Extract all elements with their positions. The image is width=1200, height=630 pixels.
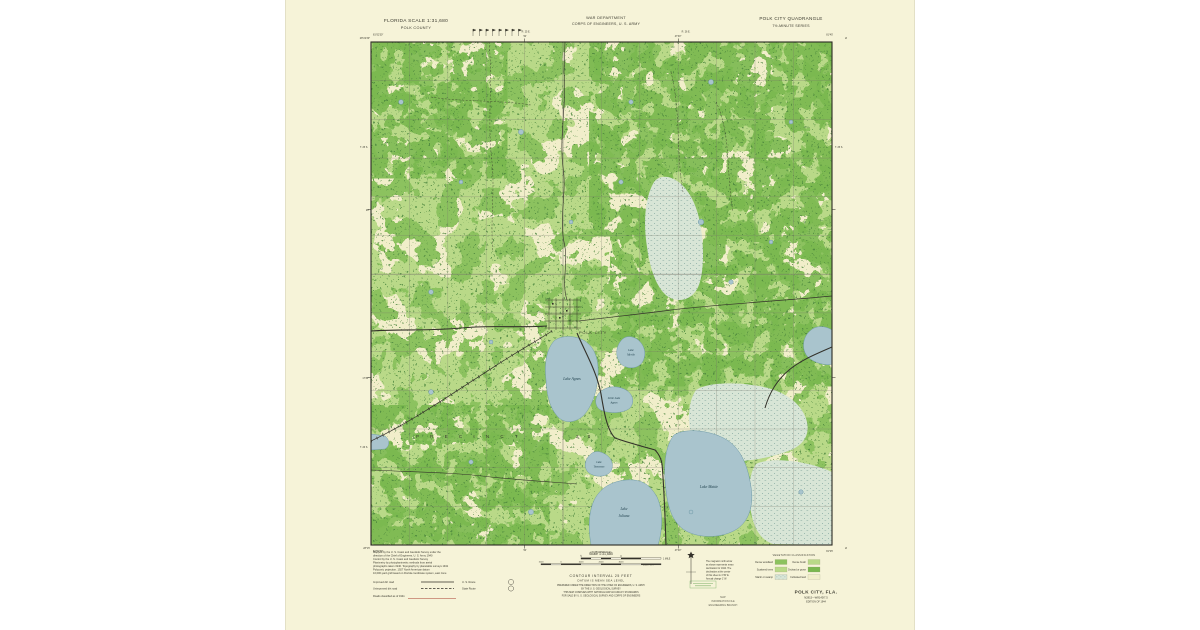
lake-tennessee-label-2: Tennessee bbox=[594, 466, 606, 469]
feet-tick-label: 1000 bbox=[539, 562, 545, 564]
little-lake-agnes-label-1: Little Lake bbox=[607, 396, 621, 400]
archive-stamp: MAP INFORMATION FILE ENGINEERING BRANCH bbox=[690, 581, 738, 607]
legend-label: Dense woodland bbox=[755, 561, 773, 564]
township-label-1: T. 25 S. bbox=[360, 146, 368, 149]
tick-label-top-1: 50′ bbox=[523, 35, 527, 38]
road-classification: Improved dirt road U. S. Route Unimprove… bbox=[373, 579, 514, 598]
miles-tick-label: 1 MILE bbox=[663, 559, 671, 561]
declination-line: of this sheet is 1°30′ E. bbox=[706, 574, 730, 577]
town-label: POLK CITY bbox=[579, 330, 607, 335]
feet-scale-bar: 1000 0 1000 2000 3000 4000 FEET bbox=[539, 562, 661, 567]
us-route-shield bbox=[508, 579, 513, 584]
header-scale-line: FLORIDA SCALE 1:31,680 bbox=[384, 18, 448, 24]
lake-agnes-label: Lake Agnes bbox=[562, 377, 581, 381]
lake-mattie-label: Lake Mattie bbox=[699, 485, 719, 489]
sheet-title: POLK CITY, FLA. bbox=[795, 590, 838, 595]
scale-block: Scale 1:31,680 ½ 0 1 MILE 1000 0 1000 20… bbox=[539, 552, 671, 598]
scale-label: Scale 1:31,680 bbox=[589, 552, 613, 556]
range-label-1: R. 25 E. bbox=[522, 31, 531, 34]
legend-label: Orchard or grove bbox=[788, 569, 807, 572]
declination-line: Annual change 1′ W. bbox=[706, 578, 727, 581]
declination-note: The magnetic north arrow as shown repres… bbox=[706, 560, 734, 581]
lake-myrtle-label-2: Myrtle bbox=[626, 353, 635, 357]
declination-line: declination for 1944. The bbox=[706, 567, 732, 570]
legend-label: Scattered trees bbox=[757, 569, 774, 572]
stamp-line: MAP bbox=[720, 596, 726, 599]
credit-line: Polyconic projection. 1927 North America… bbox=[373, 568, 430, 572]
north-arrow bbox=[686, 552, 696, 585]
miles-tick-label: ½ bbox=[580, 554, 582, 558]
stamp-text: MAP INFORMATION FILE ENGINEERING BRANCH bbox=[709, 596, 738, 607]
legend-label: Cultivated land bbox=[790, 576, 806, 579]
declination-line: The magnetic north arrow bbox=[706, 560, 733, 563]
footer-note-line: BY THE U. S. GEOLOGICAL SURVEY bbox=[581, 588, 621, 591]
corner-label-top-right-lat: 28°22′30″ bbox=[845, 37, 847, 40]
range-label-2: R. 26 E. bbox=[682, 31, 691, 34]
contour-interval-label: CONTOUR INTERVAL 25 FEET bbox=[570, 574, 633, 578]
sheet-edition: EDITION OF 1944 bbox=[806, 601, 826, 604]
credits-block: Mapped by the U. S. Coast and Geodetic S… bbox=[373, 550, 449, 575]
legend-swatch-scattered-trees bbox=[775, 567, 787, 572]
header-right: POLK CITY QUADRANGLE 7½-MINUTE SERIES bbox=[759, 16, 822, 28]
miles-tick-label: 0 bbox=[620, 556, 622, 558]
corner-label-top-left-lat: 28°22′30″ bbox=[360, 37, 370, 40]
credit-line: Control by the U. S. Coast and Geodetic … bbox=[373, 557, 429, 561]
sheet-title-block: POLK CITY, FLA. N2815—W8145/7.5 EDITION … bbox=[795, 590, 838, 604]
road-note: Roads classified as of 1941 bbox=[373, 594, 405, 598]
legend-label: Dense brush bbox=[792, 561, 806, 564]
tick-label-top-2: 47′30″ bbox=[675, 35, 682, 38]
township-label-2: T. 26 S. bbox=[360, 446, 368, 449]
state-route-shield bbox=[508, 586, 513, 591]
township-label-right: T. 25 S. bbox=[835, 146, 843, 149]
og-image-page: FLORIDA SCALE 1:31,680 POLK COUNTY WAR D… bbox=[0, 0, 1200, 630]
declination-line: as shown represents mean bbox=[706, 564, 734, 567]
lake-juliana-label-2: Juliana bbox=[619, 514, 630, 518]
map-sheet: FLORIDA SCALE 1:31,680 POLK COUNTY WAR D… bbox=[285, 0, 915, 630]
declination-line: declination at the center bbox=[706, 571, 731, 574]
footer-note-line: FOR SALE BY U. S. GEOLOGICAL SURVEY AND … bbox=[562, 595, 641, 598]
precinct-number-label: 2 0 bbox=[576, 434, 594, 439]
vegetation-legend: VEGETATION CLASSIFICATION Dense woodland… bbox=[755, 554, 820, 580]
credit-line: Planimetry by photoplanimetric methods f… bbox=[373, 561, 433, 565]
feet-tick-label: 2000 bbox=[599, 562, 605, 564]
legend-swatch-cultivated bbox=[808, 575, 820, 580]
credit-line: 10,000-yard grid based on Florida coordi… bbox=[373, 571, 447, 575]
marsh-southeast bbox=[749, 460, 832, 545]
legend-swatch-orchard bbox=[808, 567, 820, 572]
road-class-label: Unimproved dirt road bbox=[373, 587, 398, 591]
credit-line: photographs taken 1940. Topography by pl… bbox=[373, 564, 449, 568]
lake-myrtle-label-1: Lake bbox=[627, 348, 634, 352]
map-content: POLK CITY P R E C I N C T 2 0 Lake Agnes… bbox=[371, 42, 832, 545]
feet-tick-label: 0 bbox=[560, 562, 562, 564]
footer-note-line: PREPARED UNDER THE DIRECTION OF THE CHIE… bbox=[557, 584, 645, 587]
red-underline bbox=[408, 598, 456, 599]
credit-line: direction of the Chief of Engineers, U. … bbox=[373, 554, 433, 558]
feet-tick-label: 3000 bbox=[619, 562, 625, 564]
header-corps-line: CORPS OF ENGINEERS, U. S. ARMY bbox=[572, 22, 641, 26]
footer-note-line: THIS MAP COMPLIES WITH NATIONAL MAP ACCU… bbox=[563, 591, 639, 594]
lake-tennessee-label-1: Lake bbox=[595, 461, 602, 464]
legend-label: Marsh or swamp bbox=[755, 576, 773, 579]
legend-swatch-dense-brush bbox=[808, 560, 820, 565]
footer-notes: PREPARED UNDER THE DIRECTION OF THE CHIE… bbox=[557, 584, 645, 598]
road-class-label: Improved dirt road bbox=[373, 580, 395, 584]
route-label: U. S. Route bbox=[462, 580, 476, 584]
header-quadrangle-line: POLK CITY QUADRANGLE bbox=[759, 16, 822, 21]
sheet-subtitle: N2815—W8145/7.5 bbox=[804, 596, 828, 600]
datum-label: DATUM IS MEAN SEA LEVEL bbox=[578, 579, 625, 583]
legend-title: VEGETATION CLASSIFICATION bbox=[773, 554, 816, 557]
little-lake-agnes-label-2: Agnes bbox=[609, 401, 618, 405]
header-department-line: WAR DEPARTMENT bbox=[586, 16, 626, 20]
topographic-map: 28°22′30″ 81°52′30″ 81°45′ 28°22′30″ 50′… bbox=[356, 28, 847, 559]
legend-swatch-dense-woodland bbox=[775, 560, 787, 565]
corner-label-top-right-lon: 81°45′ bbox=[826, 34, 833, 37]
feet-tick-label: 1000 bbox=[579, 562, 585, 564]
route-label: State Route bbox=[462, 587, 476, 591]
credit-line: Mapped by the U. S. Coast and Geodetic S… bbox=[373, 550, 441, 554]
corner-label-top-left-lon: 81°52′30″ bbox=[373, 34, 383, 37]
sheet-footer: Mapped by the U. S. Coast and Geodetic S… bbox=[286, 550, 916, 630]
stamp-line: ENGINEERING BRANCH bbox=[709, 604, 738, 607]
precinct-label: P R E C I N C T bbox=[416, 434, 523, 439]
legend-swatch-marsh bbox=[775, 575, 787, 580]
header-center: WAR DEPARTMENT CORPS OF ENGINEERS, U. S.… bbox=[572, 16, 641, 26]
stamp-line: INFORMATION FILE bbox=[711, 600, 735, 603]
lake-juliana-label-1: Lake bbox=[620, 507, 628, 511]
